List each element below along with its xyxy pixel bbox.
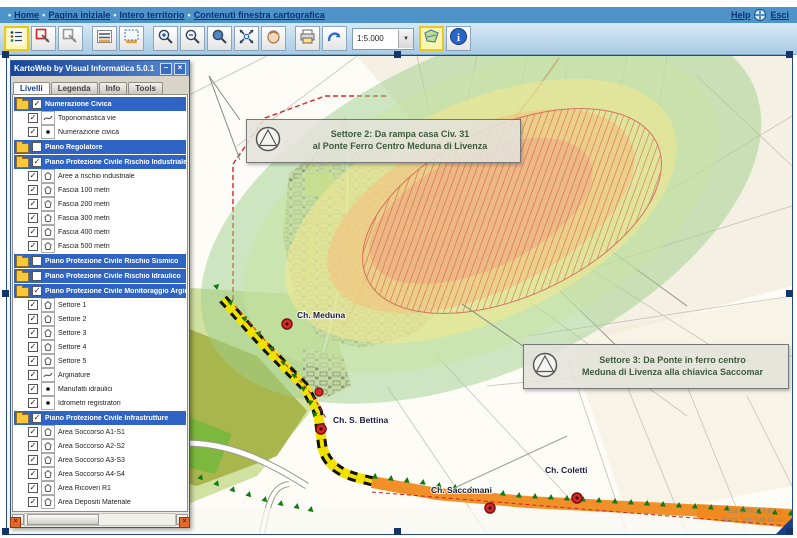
sector-symbol-icon <box>254 125 282 157</box>
print-button[interactable] <box>295 26 320 51</box>
select-area-icon <box>123 28 140 50</box>
folder-icon <box>16 158 29 168</box>
exit-link[interactable]: Esci <box>770 10 789 20</box>
layer-checkbox[interactable]: ✓ <box>28 127 38 137</box>
panel-grip-left[interactable]: × <box>10 517 21 528</box>
layer-label: Fascia 100 metri <box>58 187 110 194</box>
layer-group-checkbox[interactable]: ✓ <box>32 286 42 296</box>
folder-icon <box>16 100 29 110</box>
chevron-down-icon: ▼ <box>398 30 413 48</box>
pan-button[interactable] <box>261 26 286 51</box>
clear-selection-button[interactable] <box>58 26 83 51</box>
redo-button[interactable] <box>322 26 347 51</box>
layer-label: Manufatti idraulici <box>58 386 112 393</box>
breadcrumb-separator: • <box>188 10 191 20</box>
globe-icon <box>754 9 766 21</box>
layer-group-checkbox[interactable] <box>32 271 42 281</box>
layer-checkbox[interactable]: ✓ <box>28 370 38 380</box>
layer-label: Idrometri registratori <box>58 400 121 407</box>
callout-settore-2: Settore 2: Da rampa casa Civ. 31 al Pont… <box>246 119 521 163</box>
resize-handle[interactable] <box>394 528 401 535</box>
zoom-in-icon <box>157 28 174 50</box>
layer-item-area-soccorso-a2-s2[interactable]: ✓Area Soccorso A2-S2 <box>13 439 187 453</box>
point-layer-icon <box>41 382 55 396</box>
identify-icon <box>35 28 52 50</box>
layer-group-checkbox[interactable]: ✓ <box>32 157 42 167</box>
layer-item-fascia-200-metri[interactable]: ✓Fascia 200 metri <box>13 197 187 211</box>
layer-item-area-depositi-materiale[interactable]: ✓Area Depositi Materiale <box>13 495 187 509</box>
layer-label: Toponomastica vie <box>58 115 116 122</box>
zoom-window-button[interactable] <box>207 26 232 51</box>
layer-group-label: Piano Protezione Civile Monitoraggio Arg… <box>45 288 186 295</box>
polygon-layer-icon <box>41 298 55 312</box>
layer-checkbox[interactable]: ✓ <box>28 342 38 352</box>
layer-group-piano-protezione-civile-infrastrutture[interactable]: ✓Piano Protezione Civile Infrastrutture <box>14 411 186 425</box>
layer-checkbox[interactable]: ✓ <box>28 328 38 338</box>
layer-checkbox[interactable]: ✓ <box>28 199 38 209</box>
chiavica-marker-coletti[interactable] <box>572 493 582 503</box>
layer-group-label: Piano Protezione Civile Rischio Industri… <box>45 159 186 166</box>
sector-symbol-icon <box>531 351 559 383</box>
polygon-layer-icon <box>41 453 55 467</box>
menubar: •Home•Pagina iniziale•Intero territorio•… <box>0 7 797 23</box>
coordinate-y: Nord: 5087148.81 m <box>723 517 782 526</box>
zoom-out-button[interactable] <box>180 26 205 51</box>
callout-line: Meduna di Livenza alla chiavica Saccomar <box>582 367 763 377</box>
layer-group-piano-protezione-civile-monitoraggio-argini[interactable]: ✓Piano Protezione Civile Monitoraggio Ar… <box>14 284 186 298</box>
layer-group-piano-protezione-civile-rischio-industriale[interactable]: ✓Piano Protezione Civile Rischio Industr… <box>14 155 186 169</box>
layer-group-label: Piano Regolatore <box>45 144 103 151</box>
layer-item-settore-1[interactable]: ✓Settore 1 <box>13 298 187 312</box>
map-label-ch-coletti: Ch. Coletti <box>545 465 588 475</box>
layer-group-label: Numerazione Civica <box>45 101 112 108</box>
breadcrumb-link[interactable]: Home <box>14 10 39 20</box>
layer-label: Fascia 300 metri <box>58 215 110 222</box>
layer-checkbox[interactable]: ✓ <box>28 185 38 195</box>
layer-group-numerazione-civica[interactable]: ✓Numerazione Civica <box>14 97 186 111</box>
breadcrumb-link[interactable]: Intero territorio <box>120 10 185 20</box>
layer-label: Area Soccorso A4-S4 <box>58 471 125 478</box>
layer-checkbox[interactable]: ✓ <box>28 356 38 366</box>
layer-item-fascia-300-metri[interactable]: ✓Fascia 300 metri <box>13 211 187 225</box>
layer-label: Area Soccorso A1-S1 <box>58 429 125 436</box>
full-extent-button[interactable] <box>234 26 259 51</box>
polygon-layer-icon <box>41 225 55 239</box>
folder-icon <box>16 257 29 267</box>
resize-handle[interactable] <box>2 51 9 58</box>
select-area-button[interactable] <box>119 26 144 51</box>
layer-checkbox[interactable]: ✓ <box>28 441 38 451</box>
zoom-window-icon <box>211 28 228 50</box>
info-icon: i <box>449 27 468 51</box>
overview-map-button[interactable] <box>419 26 444 51</box>
chiavica-marker-saccomani[interactable] <box>485 503 495 513</box>
tab-livelli[interactable]: Livelli <box>13 82 50 94</box>
polygon-layer-icon <box>41 354 55 368</box>
print-icon <box>299 28 316 50</box>
layer-checkbox[interactable]: ✓ <box>28 300 38 310</box>
layers-panel: KartoWeb by Visual Informatica 5.0.1 – ×… <box>10 60 190 528</box>
tab-info[interactable]: Info <box>99 82 128 94</box>
resize-handle[interactable] <box>394 51 401 58</box>
callout-line: al Ponte Ferro Centro Meduna di Livenza <box>313 141 488 151</box>
folder-icon <box>16 272 29 282</box>
layer-item-arginature[interactable]: ✓Arginature <box>13 368 187 382</box>
polygon-layer-icon <box>41 312 55 326</box>
polygon-layer-icon <box>41 183 55 197</box>
chiavica-marker-meduna[interactable] <box>282 319 292 329</box>
layer-checkbox[interactable]: ✓ <box>28 171 38 181</box>
layer-item-settore-3[interactable]: ✓Settore 3 <box>13 326 187 340</box>
layer-item-fascia-400-metri[interactable]: ✓Fascia 400 metri <box>13 225 187 239</box>
resize-handle[interactable] <box>786 51 793 58</box>
help-link[interactable]: Help <box>731 10 751 20</box>
measure-icon <box>96 28 113 50</box>
breadcrumb-separator: • <box>113 10 116 20</box>
layer-group-checkbox[interactable] <box>32 142 42 152</box>
tab-tools[interactable]: Tools <box>128 82 163 94</box>
layer-item-area-ricoveri-r1[interactable]: ✓Area Ricoveri R1 <box>13 481 187 495</box>
polygon-layer-icon <box>41 495 55 509</box>
panel-tabs: LivelliLegendaInfoTools <box>11 76 189 94</box>
layer-checkbox[interactable]: ✓ <box>28 483 38 493</box>
layer-label: Fascia 400 metri <box>58 229 110 236</box>
zoom-in-button[interactable] <box>153 26 178 51</box>
layer-label: Area Ricoveri R1 <box>58 485 111 492</box>
layer-label: Settore 2 <box>58 316 86 323</box>
breadcrumb-link[interactable]: Pagina iniziale <box>48 10 110 20</box>
callout-line: Settore 3: Da Ponte in ferro centro <box>599 355 746 365</box>
layer-label: Settore 4 <box>58 344 86 351</box>
layer-checkbox[interactable]: ✓ <box>28 213 38 223</box>
layer-item-area-soccorso-a3-s3[interactable]: ✓Area Soccorso A3-S3 <box>13 453 187 467</box>
layer-checkbox[interactable]: ✓ <box>28 469 38 479</box>
layer-label: Fascia 200 metri <box>58 201 110 208</box>
layer-group-checkbox[interactable]: ✓ <box>32 413 42 423</box>
folder-icon <box>16 287 29 297</box>
folder-icon <box>16 414 29 424</box>
layer-item-aree-a-rischio-industriale[interactable]: ✓Aree a rischio industriale <box>13 169 187 183</box>
scrollbar-track[interactable] <box>24 513 176 526</box>
line-layer-icon <box>41 368 55 382</box>
polygon-layer-icon <box>41 211 55 225</box>
layer-item-fascia-500-metri[interactable]: ✓Fascia 500 metri <box>13 239 187 253</box>
layer-group-checkbox[interactable]: ✓ <box>32 99 42 109</box>
redo-icon <box>326 28 343 50</box>
point-layer-icon <box>41 396 55 410</box>
layers-icon <box>8 28 25 50</box>
coordinate-x: Est: 1791177.87 m <box>723 508 782 517</box>
layer-group-label: Piano Protezione Civile Rischio Sismico <box>45 258 178 265</box>
polygon-layer-icon <box>41 197 55 211</box>
layer-checkbox[interactable]: ✓ <box>28 241 38 251</box>
polygon-layer-icon <box>41 239 55 253</box>
layer-checkbox[interactable]: ✓ <box>28 384 38 394</box>
line-layer-icon <box>41 111 55 125</box>
polygon-layer-icon <box>41 169 55 183</box>
layer-item-area-soccorso-a1-s1[interactable]: ✓Area Soccorso A1-S1 <box>13 425 187 439</box>
layer-group-label: Piano Protezione Civile Infrastrutture <box>45 415 168 422</box>
panel-titlebar[interactable]: KartoWeb by Visual Informatica 5.0.1 – × <box>11 61 189 76</box>
layer-checkbox[interactable]: ✓ <box>28 427 38 437</box>
clear-selection-icon <box>62 28 79 50</box>
layer-checkbox[interactable]: ✓ <box>28 113 38 123</box>
layer-item-manufatti-idraulici[interactable]: ✓Manufatti idraulici <box>13 382 187 396</box>
layer-item-settore-5[interactable]: ✓Settore 5 <box>13 354 187 368</box>
tab-legenda[interactable]: Legenda <box>51 82 98 94</box>
layer-group-piano-protezione-civile-rischio-idraulico[interactable]: Piano Protezione Civile Rischio Idraulic… <box>14 269 186 283</box>
resize-handle[interactable] <box>2 290 9 297</box>
layer-item-idrometri-registratori[interactable]: ✓Idrometri registratori <box>13 396 187 410</box>
close-icon[interactable]: × <box>174 63 186 75</box>
layer-item-toponomastica-vie[interactable]: ✓Toponomastica vie <box>13 111 187 125</box>
polygon-layer-icon <box>41 481 55 495</box>
folder-icon <box>16 143 29 153</box>
resize-handle[interactable] <box>2 528 9 535</box>
layer-checkbox[interactable]: ✓ <box>28 497 38 507</box>
full-extent-icon <box>238 28 255 50</box>
layer-checkbox[interactable]: ✓ <box>28 227 38 237</box>
layer-label: Fascia 500 metri <box>58 243 110 250</box>
layer-tree: ✓Numerazione Civica✓Toponomastica vie✓Nu… <box>12 94 188 512</box>
layer-label: Area Depositi Materiale <box>58 499 131 506</box>
layer-label: Arginature <box>58 372 90 379</box>
scrollbar-thumb[interactable] <box>27 514 99 525</box>
map-label-ch-s-bettina: Ch. S. Bettina <box>333 415 389 425</box>
scale-select[interactable]: 1:5.000 ▼ <box>352 28 414 50</box>
layer-label: Area Soccorso A3-S3 <box>58 457 125 464</box>
callout-settore-3: Settore 3: Da Ponte in ferro centro Medu… <box>523 344 789 389</box>
polygon-layer-icon <box>41 340 55 354</box>
layer-group-piano-regolatore[interactable]: Piano Regolatore <box>14 140 186 154</box>
polygon-layer-icon <box>41 425 55 439</box>
breadcrumb-link[interactable]: Contenuti finestra cartografica <box>194 10 325 20</box>
layer-group-label: Piano Protezione Civile Rischio Idraulic… <box>45 273 181 280</box>
layer-group-checkbox[interactable] <box>32 256 42 266</box>
svg-text:i: i <box>457 32 460 44</box>
layer-checkbox[interactable]: ✓ <box>28 455 38 465</box>
map-label-ch-meduna: Ch. Meduna <box>297 310 345 320</box>
minimize-icon[interactable]: – <box>160 63 172 75</box>
panel-scrollbar: ◄ ► <box>12 513 188 526</box>
breadcrumb-separator: • <box>42 10 45 20</box>
layer-label: Area Soccorso A2-S2 <box>58 443 125 450</box>
layer-item-settore-4[interactable]: ✓Settore 4 <box>13 340 187 354</box>
panel-title: KartoWeb by Visual Informatica 5.0.1 <box>14 64 158 73</box>
layer-checkbox[interactable]: ✓ <box>28 314 38 324</box>
cursor-coordinates: Est: 1791177.87 m Nord: 5087148.81 m <box>723 508 782 526</box>
layer-label: Aree a rischio industriale <box>58 173 135 180</box>
layer-item-numerazione-civica[interactable]: ✓Numerazione civica <box>13 125 187 139</box>
scale-value: 1:5.000 <box>353 34 398 43</box>
identify-button[interactable] <box>31 26 56 51</box>
resize-handle[interactable] <box>786 528 793 535</box>
breadcrumb-items: •Home•Pagina iniziale•Intero territorio•… <box>8 10 731 20</box>
point-layer-icon <box>41 125 55 139</box>
layer-label: Numerazione civica <box>58 129 119 136</box>
layer-label: Settore 5 <box>58 358 86 365</box>
chiavica-marker[interactable] <box>315 388 323 396</box>
info-button[interactable]: i <box>446 26 471 51</box>
layers-panel-button[interactable] <box>4 26 29 51</box>
callout-line: Settore 2: Da rampa casa Civ. 31 <box>331 129 469 139</box>
panel-grip-right[interactable]: × <box>179 517 190 528</box>
polygon-layer-icon <box>41 439 55 453</box>
layer-item-fascia-100-metri[interactable]: ✓Fascia 100 metri <box>13 183 187 197</box>
layer-label: Settore 3 <box>58 330 86 337</box>
chiavica-marker-bettina[interactable] <box>316 424 326 434</box>
map-label-ch-saccomani: Ch. Saccomani <box>431 485 492 495</box>
pan-icon <box>265 28 282 50</box>
layer-group-piano-protezione-civile-rischio-sismico[interactable]: Piano Protezione Civile Rischio Sismico <box>14 254 186 268</box>
resize-handle[interactable] <box>786 290 793 297</box>
layer-checkbox[interactable]: ✓ <box>28 398 38 408</box>
overview-map-icon <box>423 28 440 50</box>
polygon-layer-icon <box>41 467 55 481</box>
layer-label: Settore 1 <box>58 302 86 309</box>
zoom-out-icon <box>184 28 201 50</box>
breadcrumb-separator: • <box>8 10 11 20</box>
layer-item-settore-2[interactable]: ✓Settore 2 <box>13 312 187 326</box>
layer-item-area-soccorso-a4-s4[interactable]: ✓Area Soccorso A4-S4 <box>13 467 187 481</box>
measure-button[interactable] <box>92 26 117 51</box>
polygon-layer-icon <box>41 326 55 340</box>
